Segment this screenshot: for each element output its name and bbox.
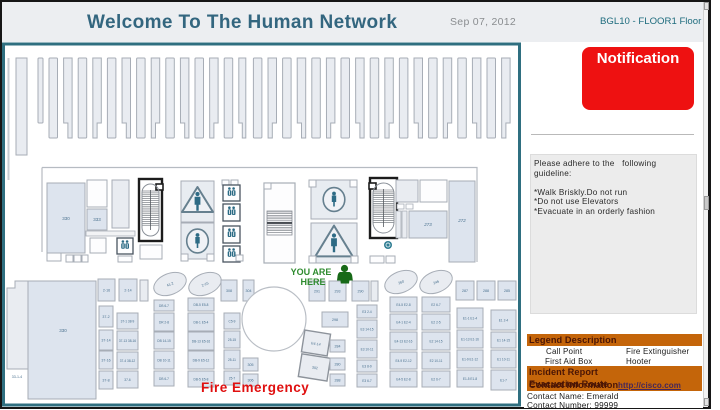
svg-text:37-8: 37-8 bbox=[102, 379, 109, 383]
svg-text:YOU ARE: YOU ARE bbox=[291, 267, 332, 277]
svg-text:272: 272 bbox=[457, 218, 466, 223]
svg-text:304: 304 bbox=[246, 289, 252, 293]
svg-text:DB 6-7: DB 6-7 bbox=[159, 304, 169, 308]
svg-text:291: 291 bbox=[314, 290, 320, 294]
svg-text:DB-13 E5-16: DB-13 E5-16 bbox=[192, 340, 211, 344]
svg-text:E1 10-11: E1 10-11 bbox=[497, 358, 510, 362]
svg-text:37-16: 37-16 bbox=[101, 359, 110, 363]
svg-text:280: 280 bbox=[335, 363, 341, 367]
svg-text:333: 333 bbox=[93, 217, 101, 222]
svg-text:E3 6-7: E3 6-7 bbox=[362, 379, 372, 383]
svg-text:HERE: HERE bbox=[300, 277, 325, 287]
svg-text:E3 2-4: E3 2-4 bbox=[362, 310, 372, 314]
svg-text:E4-5 E2-8: E4-5 E2-8 bbox=[396, 378, 411, 382]
svg-text:E1-9 E1-12: E1-9 E1-12 bbox=[462, 358, 478, 362]
svg-text:37-14: 37-14 bbox=[101, 339, 110, 343]
svg-text:E1-1 E1-4: E1-1 E1-4 bbox=[463, 317, 478, 321]
svg-text:288: 288 bbox=[335, 379, 341, 383]
svg-text:298: 298 bbox=[332, 318, 338, 322]
svg-text:Fire Emergency: Fire Emergency bbox=[201, 380, 309, 395]
svg-text:273: 273 bbox=[423, 222, 432, 227]
svg-text:37-2: 37-2 bbox=[102, 315, 109, 319]
svg-text:E2 6-7: E2 6-7 bbox=[431, 303, 441, 307]
svg-text:290: 290 bbox=[358, 290, 364, 294]
svg-text:DB 14-15: DB 14-15 bbox=[157, 339, 171, 343]
svg-text:E2 14-15: E2 14-15 bbox=[430, 340, 443, 344]
svg-text:E1 14-15: E1 14-15 bbox=[497, 339, 510, 343]
svg-text:E4-9 E2-12: E4-9 E2-12 bbox=[395, 359, 411, 363]
svg-text:330: 330 bbox=[59, 328, 67, 333]
svg-text:E4-1 E2-4: E4-1 E2-4 bbox=[396, 321, 411, 325]
svg-text:293: 293 bbox=[335, 290, 341, 294]
svg-text:2-14: 2-14 bbox=[124, 289, 131, 293]
svg-text:287: 287 bbox=[462, 289, 468, 293]
svg-text:E4-5 E2-8: E4-5 E2-8 bbox=[396, 303, 411, 307]
svg-text:DB-9 E5-12: DB-9 E5-12 bbox=[193, 359, 210, 363]
svg-text:284: 284 bbox=[335, 345, 341, 349]
svg-text:305: 305 bbox=[248, 363, 254, 367]
svg-text:37-4 38-12: 37-4 38-12 bbox=[120, 359, 136, 363]
svg-text:DB-5 E5-8: DB-5 E5-8 bbox=[194, 303, 209, 307]
svg-text:E4-13 E2-16: E4-13 E2-16 bbox=[395, 340, 413, 344]
svg-text:285: 285 bbox=[504, 289, 510, 293]
svg-text:308: 308 bbox=[226, 289, 232, 293]
svg-text:288: 288 bbox=[483, 289, 489, 293]
svg-text:DR 2-8: DR 2-8 bbox=[159, 321, 169, 325]
svg-text:DB 10-11: DB 10-11 bbox=[157, 359, 170, 363]
svg-text:37-1 38-9: 37-1 38-9 bbox=[121, 320, 135, 324]
svg-text:DB 6-7: DB 6-7 bbox=[159, 377, 169, 381]
svg-text:E2 10-11: E2 10-11 bbox=[430, 359, 443, 363]
svg-text:E1-5 E1-8: E1-5 E1-8 bbox=[463, 377, 478, 381]
svg-text:E3 8-9: E3 8-9 bbox=[362, 365, 372, 369]
svg-text:330: 330 bbox=[62, 216, 70, 221]
svg-text:E2 6-7: E2 6-7 bbox=[431, 378, 441, 382]
svg-text:2-16: 2-16 bbox=[103, 289, 110, 293]
svg-text:25-11: 25-11 bbox=[228, 358, 236, 362]
svg-text:E1 2-4: E1 2-4 bbox=[499, 319, 509, 323]
svg-text:25-15: 25-15 bbox=[228, 338, 236, 342]
svg-text:E3 14-15: E3 14-15 bbox=[361, 328, 374, 332]
svg-text:E1-7: E1-7 bbox=[500, 379, 507, 383]
svg-text:E3 10-11: E3 10-11 bbox=[361, 348, 374, 352]
svg-text:37-6: 37-6 bbox=[124, 378, 131, 382]
svg-text:33-1-4: 33-1-4 bbox=[12, 375, 22, 379]
svg-text:E1-13 E1-16: E1-13 E1-16 bbox=[461, 338, 479, 342]
svg-text:37-13 38-16: 37-13 38-16 bbox=[119, 339, 136, 343]
svg-text:DB-1 E5-4: DB-1 E5-4 bbox=[194, 321, 209, 325]
svg-text:C5-9: C5-9 bbox=[229, 320, 236, 324]
svg-text:E2 2-5: E2 2-5 bbox=[431, 321, 441, 325]
